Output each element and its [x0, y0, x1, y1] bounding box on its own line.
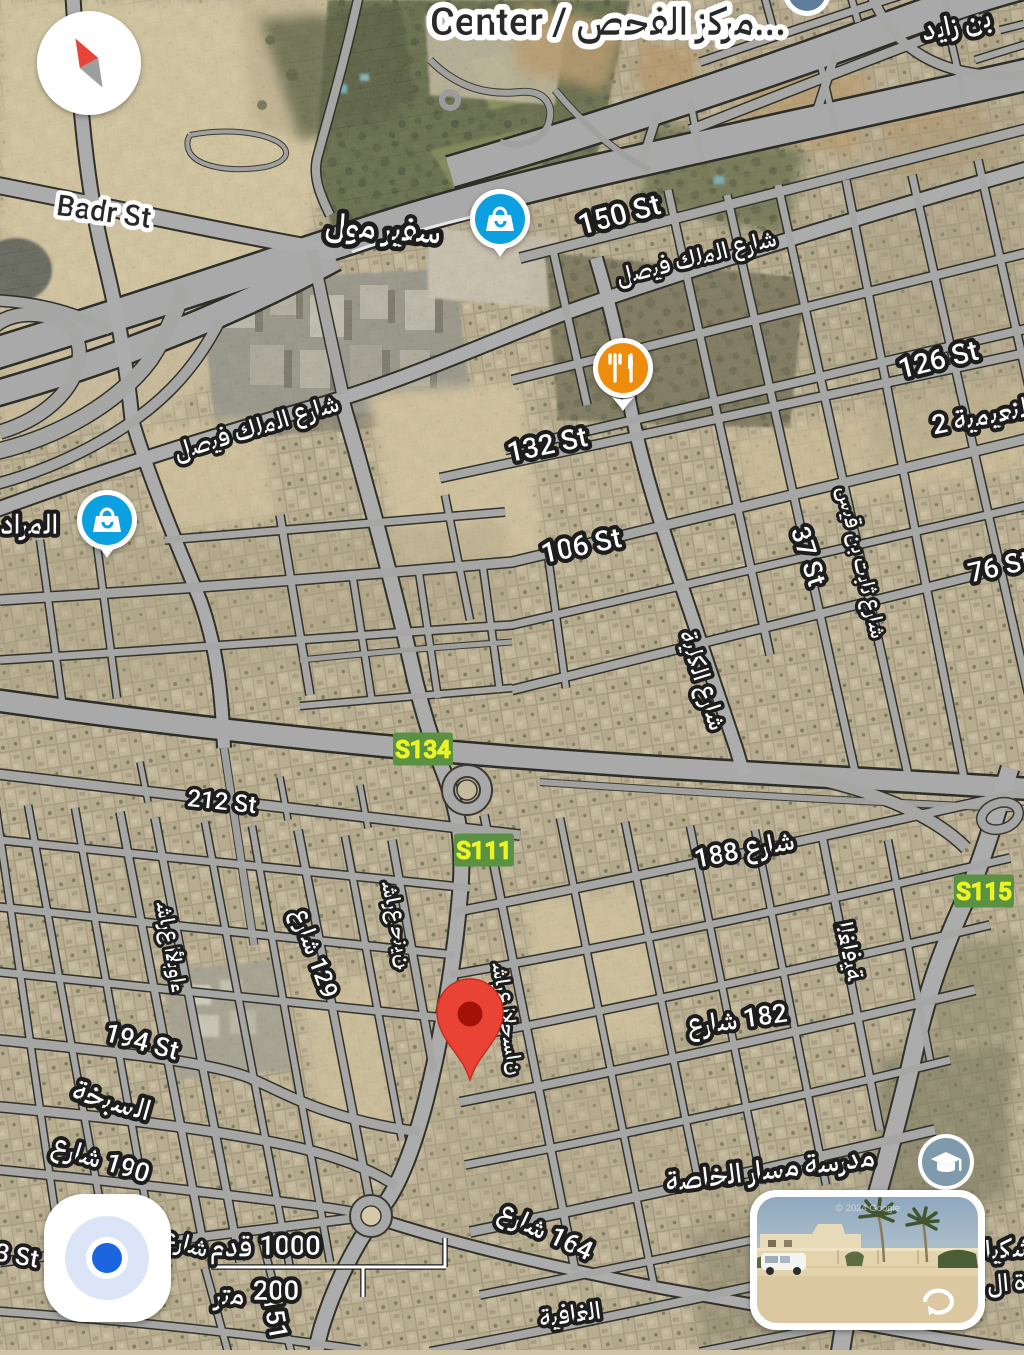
svg-text:© 2024 Google: © 2024 Google — [836, 1203, 900, 1214]
